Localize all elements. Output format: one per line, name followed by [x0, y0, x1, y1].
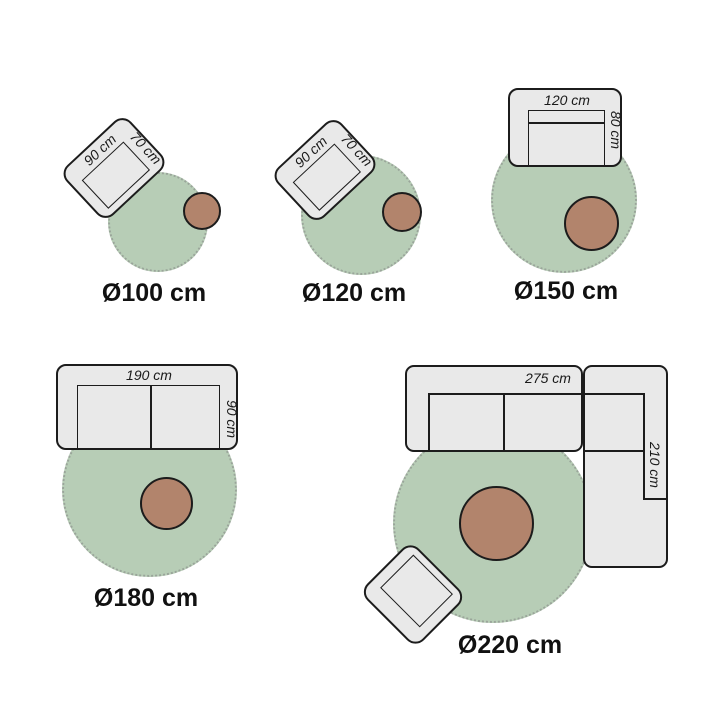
corner-sofa: 275 cm 210 cm: [405, 365, 668, 568]
side-table: [564, 196, 619, 251]
sofa-width-label: 190 cm: [126, 368, 172, 382]
sofa: 190 cm 90 cm: [56, 364, 238, 450]
rug-diameter-label: Ø120 cm: [254, 280, 454, 306]
chaise-back-end-line: [643, 498, 668, 500]
seat-divider-line: [503, 393, 505, 452]
rug-diameter-label: Ø220 cm: [410, 632, 610, 658]
sofa-seat: [77, 385, 220, 448]
side-table: [382, 192, 422, 232]
corner-seam-line: [583, 450, 643, 452]
seat-armrest-line: [428, 393, 430, 452]
seat-divider-line: [150, 385, 152, 448]
side-table: [140, 477, 193, 530]
rug-diameter-label: Ø100 cm: [54, 280, 254, 306]
sofa-depth-label: 210 cm: [648, 442, 662, 488]
sofa-seat: [528, 110, 605, 165]
side-table: [183, 192, 221, 230]
rug-diameter-label: Ø180 cm: [46, 585, 246, 611]
sofa: 120 cm 80 cm: [508, 88, 622, 167]
sofa-depth-label: 90 cm: [225, 400, 239, 438]
side-table: [459, 486, 534, 561]
sofa-back-cushion-line: [528, 122, 605, 124]
rug-diameter-label: Ø150 cm: [466, 278, 666, 304]
chaise-back-line: [643, 393, 645, 498]
rug-size-guide: 90 cm 70 cm Ø100 cm 90 cm 70 cm Ø120 cm …: [0, 0, 720, 720]
seat-back-line: [428, 393, 643, 395]
sofa-depth-label: 80 cm: [609, 111, 623, 149]
sofa-width-label: 275 cm: [525, 371, 571, 385]
sofa-width-label: 120 cm: [544, 93, 590, 107]
